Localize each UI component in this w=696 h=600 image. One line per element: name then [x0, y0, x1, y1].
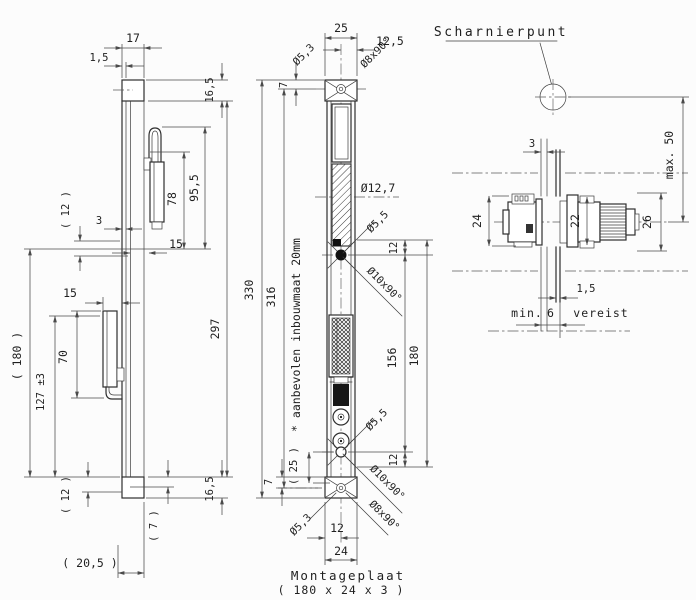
dim-20-5: ( 20,5 ): [62, 556, 117, 570]
dim-24-width: 24: [334, 544, 348, 558]
dim-26-section: 26: [640, 215, 654, 229]
front-view: 25 12,5 Ø5,3 Ø8x90° 7 330 316 * aanbevol…: [242, 21, 433, 597]
dim-15-top: 15: [169, 237, 183, 251]
dim-15-bottom: 15: [63, 286, 77, 300]
dim-hole-5-3-top: Ø5,3: [291, 42, 317, 68]
dim-hole-5-5-bottom: Ø5,5: [364, 407, 390, 433]
dim-16-5-top: 16,5: [204, 77, 216, 102]
dim-hole-5-3-bottom: Ø5,3: [288, 512, 314, 538]
dim-127: 127 ±3: [35, 373, 47, 411]
side-view: 17 1,5 16,5 95,5 78 ( 12 ) 3 15 297 ( 18…: [10, 31, 233, 578]
dim-78: 78: [165, 192, 179, 206]
dim-316: 316: [264, 287, 278, 308]
technical-drawing: 17 1,5 16,5 95,5 78 ( 12 ) 3 15 297 ( 18…: [0, 0, 696, 600]
dim-12-bottom: ( 12 ): [60, 476, 72, 514]
dim-25: 25: [334, 21, 348, 35]
note-inbouwmaat: * aanbevolen inbouwmaat 20mm: [289, 238, 303, 432]
dim-csk-10-90-bottom: Ø10x90°: [367, 463, 407, 503]
dim-vereist: vereist: [573, 306, 628, 320]
dim-7-top: 7: [278, 82, 290, 88]
dim-297: 297: [208, 319, 222, 340]
dim-95-5: 95,5: [187, 174, 201, 202]
dim-17: 17: [126, 31, 140, 45]
dim-12-top: ( 12 ): [60, 191, 72, 229]
dim-12-offset-top: 12: [388, 242, 400, 255]
dim-hole-5-5-top: Ø5,5: [365, 209, 391, 235]
dim-max-50: max. 50: [662, 131, 676, 180]
dim-180: ( 180 ): [10, 332, 24, 380]
dim-12-width: 12: [330, 521, 344, 535]
dim-25-offset: ( 25 ): [288, 447, 300, 485]
dim-3: 3: [96, 215, 102, 227]
dim-180-front: 180: [407, 346, 421, 367]
dim-3-section: 3: [529, 138, 535, 150]
caption-montageplaat: Montageplaat: [291, 568, 405, 583]
label-scharnierpunt: Scharnierpunt: [434, 25, 568, 40]
dim-7-bottom: ( 7 ): [148, 510, 160, 542]
dim-24-section: 24: [470, 214, 484, 228]
technical-drawing-page: 17 1,5 16,5 95,5 78 ( 12 ) 3 15 297 ( 18…: [0, 0, 696, 600]
dim-330: 330: [242, 280, 256, 301]
caption-size: ( 180 x 24 x 3 ): [278, 583, 405, 597]
dim-70: 70: [56, 350, 70, 364]
dim-156: 156: [385, 348, 399, 369]
dim-7-bottom-front: 7: [263, 479, 275, 485]
dim-1-5: 1,5: [90, 52, 109, 64]
dim-roller-12-7: Ø12,7: [361, 181, 396, 195]
dim-min-6: 6: [547, 306, 555, 320]
dim-12-offset-bottom: 12: [388, 454, 400, 467]
dim-1-5-section: 1,5: [577, 283, 596, 295]
dim-22-section: 22: [568, 214, 582, 228]
section-view: Scharnierpunt max. 50 3 24 22 26 1,5 min…: [434, 25, 689, 338]
dim-csk-8-90-bottom: Ø8x90°: [366, 498, 401, 533]
dim-csk-10-90-top: Ø10x90°: [364, 265, 404, 305]
dim-min-label: min.: [511, 306, 543, 320]
dim-16-5-bottom: 16,5: [204, 476, 216, 501]
